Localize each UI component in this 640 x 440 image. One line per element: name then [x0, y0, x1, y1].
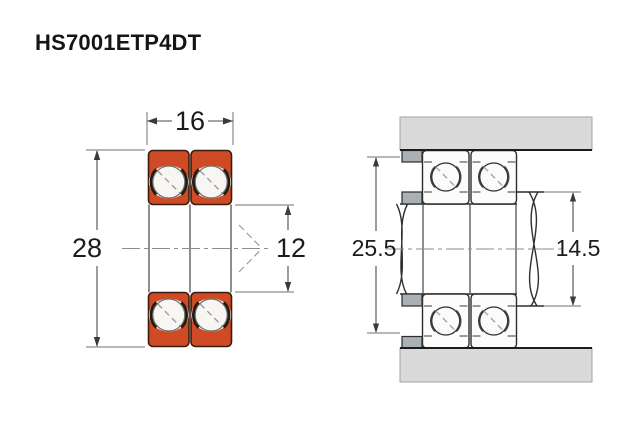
- mounted-ball: [431, 307, 461, 335]
- drawing-canvas: HS7001ETP4DT: [0, 0, 640, 440]
- bearing-ball: [191, 299, 231, 332]
- dimension-housing-abutment-label: 25.5: [352, 235, 397, 261]
- bearing-ball: [149, 166, 189, 199]
- dimension-bore-label: 12: [276, 233, 306, 263]
- dimension-housing-abutment: 25.5: [352, 157, 400, 333]
- bearing-technical-drawing: 16 28 12: [0, 0, 640, 440]
- left-view-bearing-cross-section: 16 28 12: [72, 106, 306, 347]
- housing-block-bottom: [400, 348, 592, 382]
- right-view-mounting-arrangement: 25.5 14.5: [352, 117, 601, 382]
- dimension-outer-diameter-label: 28: [72, 233, 102, 263]
- bearing-ball: [149, 299, 189, 332]
- dimension-shaft-abutment-label: 14.5: [556, 235, 601, 261]
- mounted-ball: [479, 163, 509, 191]
- outer-spacer-bottom: [402, 337, 422, 349]
- housing-block-top: [400, 117, 592, 150]
- mounted-ball: [479, 307, 509, 335]
- inner-spacer-bottom: [402, 294, 422, 306]
- dimension-width-label: 16: [175, 106, 205, 136]
- inner-spacer-top: [402, 192, 422, 204]
- outer-spacer-top: [402, 151, 422, 163]
- mounted-ball: [431, 163, 461, 191]
- dimension-width: 16: [147, 106, 233, 145]
- bearing-ball: [191, 166, 231, 199]
